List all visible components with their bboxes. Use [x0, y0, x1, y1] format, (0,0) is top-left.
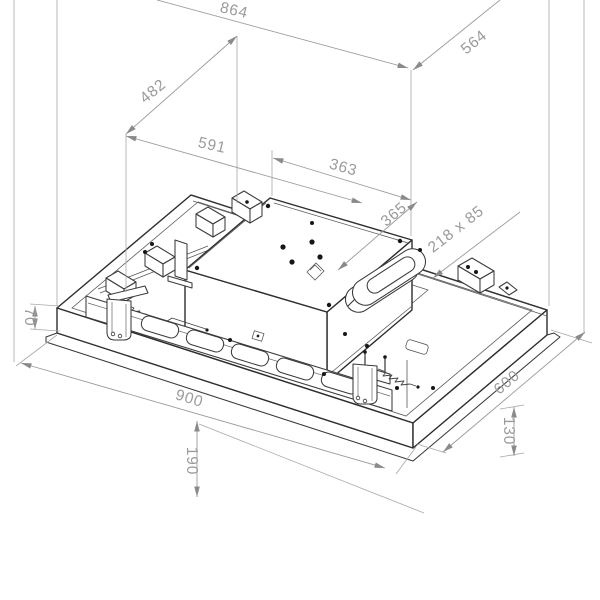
- dimension-363: 363: [273, 156, 411, 200]
- dim-label-130: 130: [500, 417, 517, 445]
- dimension-564: 564: [413, 0, 500, 70]
- dim-label-482: 482: [137, 76, 170, 107]
- dim-label-365: 365: [378, 199, 411, 230]
- dimension-190: 190: [183, 421, 200, 497]
- dim-label-70: 70: [21, 308, 38, 327]
- drawing-sheet: 864 564 482 591 363 365 218 x 85 70 900 …: [0, 0, 600, 600]
- dimension-482: 482: [126, 36, 237, 134]
- dim-label-591: 591: [196, 134, 227, 157]
- dim-label-218x85: 218 x 85: [425, 202, 487, 256]
- dimension-130: 130: [500, 407, 517, 456]
- dim-label-190: 190: [183, 447, 200, 475]
- dim-label-564: 564: [458, 27, 491, 58]
- dimension-864: 864: [157, 0, 408, 68]
- isometric-technical-drawing: 864 564 482 591 363 365 218 x 85 70 900 …: [0, 0, 600, 600]
- bracket-right-plate: [499, 282, 517, 295]
- dim-label-864: 864: [218, 0, 249, 22]
- dimension-70: 70: [21, 306, 38, 329]
